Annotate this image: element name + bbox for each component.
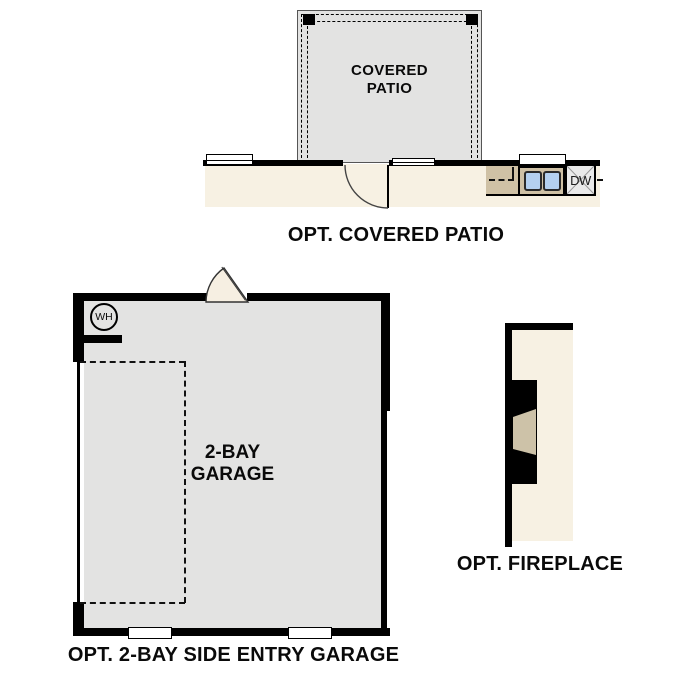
counter-dashed-continuation	[597, 179, 603, 181]
fireplace-caption: OPT. FIREPLACE	[440, 553, 640, 576]
water-heater-nook-wall	[84, 335, 122, 343]
window-mullion	[207, 160, 252, 161]
dishwasher: DW	[565, 164, 596, 196]
fireplace-wall-top	[505, 323, 573, 330]
floorplan-sheet: COVERED PATIO DW	[0, 0, 687, 687]
garage-wall-top-left	[73, 293, 207, 301]
garage-wall-top-right	[247, 293, 390, 301]
water-heater-label: WH	[95, 311, 113, 323]
garage-wall-right-lower	[381, 411, 387, 628]
garage-wall-left-upper	[73, 293, 84, 362]
garage-door-swing	[200, 256, 256, 304]
garage-wall-left-thin	[77, 362, 80, 602]
patio-post-right-icon	[466, 14, 478, 25]
garage-caption: OPT. 2-BAY SIDE ENTRY GARAGE	[20, 644, 447, 667]
window-mullion	[393, 162, 434, 163]
covered-patio-caption: OPT. COVERED PATIO	[240, 224, 552, 247]
garage-vent-right	[288, 627, 332, 639]
window-right-of-door	[392, 158, 435, 166]
garage-wall-bottom	[73, 628, 390, 636]
counter-dashed-line	[489, 179, 514, 181]
firebox-hearth	[505, 380, 537, 484]
entry-door-swing-arc	[340, 160, 395, 215]
patio-room-label-line1: COVERED	[297, 62, 482, 80]
sink-basin-right	[543, 171, 561, 191]
water-heater-symbol: WH	[90, 303, 118, 331]
window-above-sink	[519, 154, 566, 165]
garage-room-label-line1: 2-BAY	[84, 442, 381, 464]
sink-basin-left	[524, 171, 542, 191]
dishwasher-label: DW	[567, 173, 594, 188]
garage-room-label-line2: GARAGE	[84, 464, 381, 486]
garage-room-label: 2-BAY GARAGE	[84, 442, 381, 486]
patio-room-label-line2: PATIO	[297, 80, 482, 98]
garage-wall-left-lower	[73, 602, 84, 628]
garage-wall-right-upper	[381, 293, 390, 411]
garage-vent-left	[128, 627, 172, 639]
counter-dashed-divider	[512, 167, 514, 179]
window-left	[206, 154, 253, 165]
patio-room-label: COVERED PATIO	[297, 62, 482, 98]
patio-post-left-icon	[303, 14, 315, 25]
garage-bay-dashed-bottom	[80, 602, 185, 604]
garage-bay-dashed-top	[80, 361, 185, 363]
kitchen-sink	[518, 166, 565, 196]
